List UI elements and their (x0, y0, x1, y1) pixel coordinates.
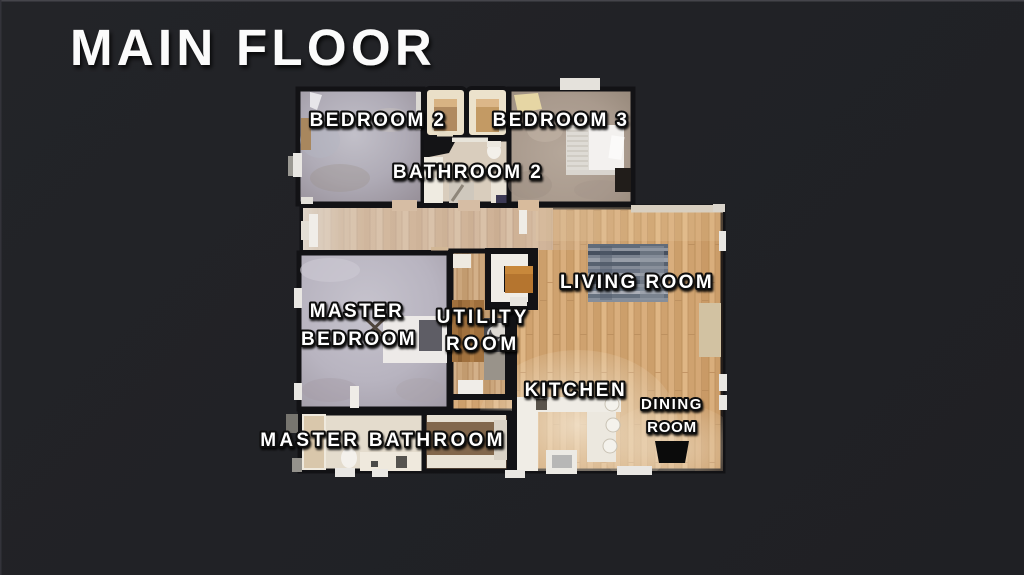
svg-text:MASTER BATHROOM: MASTER BATHROOM (260, 430, 505, 451)
svg-text:BATHROOM 2: BATHROOM 2 (393, 162, 543, 183)
svg-text:LIVING ROOM: LIVING ROOM (560, 272, 714, 293)
svg-text:MASTER: MASTER (310, 301, 405, 322)
svg-text:BEDROOM 2: BEDROOM 2 (310, 110, 447, 131)
svg-text:ROOM: ROOM (446, 334, 520, 355)
svg-text:UTILITY: UTILITY (437, 307, 530, 328)
svg-text:DINING: DINING (641, 396, 703, 413)
svg-text:ROOM: ROOM (647, 419, 697, 436)
svg-text:BEDROOM 3: BEDROOM 3 (493, 110, 630, 131)
svg-text:KITCHEN: KITCHEN (525, 380, 628, 401)
svg-text:MAIN FLOOR: MAIN FLOOR (70, 19, 436, 76)
svg-text:BEDROOM: BEDROOM (301, 329, 417, 350)
